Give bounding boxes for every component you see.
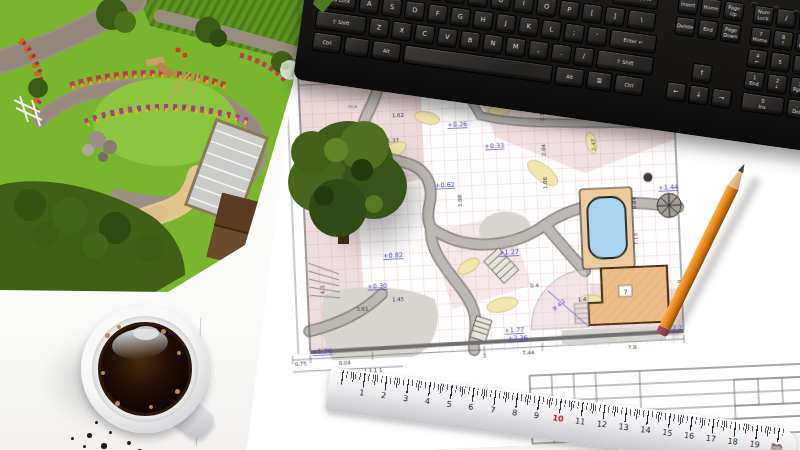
key-home: Home [700,0,722,19]
keyboard-led [773,6,779,12]
key-slash: / [573,46,595,68]
key-arrow-down: ↓ [687,84,709,106]
key-k: K [517,16,539,38]
key-v: V [436,27,458,49]
house-number: 7 [623,288,627,296]
ruler-number: 11 [569,416,592,428]
key-arrow-up: ↑ [691,63,713,85]
ruler-number: 15 [656,427,679,439]
key-end: End [697,19,719,41]
svg-text:+0.33: +0.33 [484,142,504,151]
svg-text:1.45: 1.45 [392,296,405,303]
key-a: A [358,0,380,15]
key-alt-left: Alt [371,40,402,63]
svg-text:4.3: 4.3 [319,285,325,295]
ruler-number: 19 [743,439,766,450]
key-num-5: 5 [769,51,791,73]
key-num-8: 8 ↑ [772,30,794,52]
key-t: T [444,0,466,5]
key-c: C [413,24,435,46]
key-num-7: 7 Home [749,26,771,48]
key-b: B [459,30,481,52]
key-period: . [550,43,572,65]
key-h: H [472,10,494,32]
ruler-number: 7 [481,404,504,416]
svg-text:9.84: 9.84 [631,196,638,209]
key-num-lock: Num Lock [752,5,774,27]
key-page-down: Page Down [719,22,741,44]
key-page-up: Page Up [723,0,745,22]
key-menu: ≣ [585,70,612,92]
ruler-number: 3 [394,393,417,405]
key-bracket-right: ] [604,6,626,28]
svg-text:2.04: 2.04 [540,143,547,156]
key-p: P [558,0,580,21]
svg-text:7.13: 7.13 [632,232,639,245]
ruler-number: 9 [525,410,548,422]
key-backslash: \ [626,9,656,32]
key-arrow-right: → [710,88,732,110]
ruler-number: 1 [350,387,373,399]
keyboard-led [793,10,799,16]
svg-text:0.4: 0.4 [530,282,540,288]
key-z: Z [368,17,390,39]
svg-text:1.4: 1.4 [578,296,588,302]
key-semicolon: ; [563,22,585,44]
ruler-number: 12 [590,418,613,430]
coffee-cup [57,293,237,450]
key-s: S [381,0,403,18]
svg-text:+0.30: +0.30 [367,282,387,291]
svg-text:+1.27: +1.27 [499,248,519,257]
svg-text:2.47: 2.47 [590,138,597,151]
ruler-number: 16 [678,430,701,442]
svg-text:7.44: 7.44 [522,349,535,356]
key-x: X [390,20,412,42]
key-bracket-left: [ [581,3,603,25]
key-num-9: 9 PgUp [795,33,800,55]
key-o: O [535,0,557,18]
key-l: L [540,19,562,41]
key-f: F [426,3,448,25]
ruler-number: 13 [612,421,635,433]
key-ctrl-left: Ctrl [311,31,342,54]
key-arrow-left: ← [665,81,687,103]
svg-text:+1.44: +1.44 [658,183,678,192]
key-m: M [504,36,526,58]
pool [579,187,634,269]
ruler-number: 5 [438,398,461,410]
svg-text:+1.26: +1.26 [312,347,332,356]
ruler-number: 8 [503,407,526,419]
svg-text:3.61: 3.61 [356,306,369,313]
key-enter: Enter ↵ [608,29,657,54]
svg-text:0.75: 0.75 [294,360,307,367]
svg-text:+2.36: +2.36 [508,334,528,343]
key-win [343,36,370,58]
key-ctrl-right: Ctrl [613,74,644,97]
key-num-2: 2 ↓ [766,73,788,95]
ruler-number: 6 [459,401,482,413]
key-num-decimal: . Del [786,98,800,120]
svg-text:8.04: 8.04 [339,359,352,366]
ruler-number: 4 [416,395,439,407]
ruler-number: 10 [547,413,570,425]
ruler-number: 14 [634,424,657,436]
key-y: Y [467,0,489,8]
key-g: G [449,6,471,28]
svg-text:3: 3 [483,353,487,359]
ruler-number: 2 [372,390,395,402]
svg-text:1.98: 1.98 [457,194,464,207]
key-num-1: 1 End [743,70,765,92]
key-num-0: 0 Ins [740,92,785,117]
svg-text:7.8: 7.8 [628,344,638,350]
coffee-reflection [133,326,159,340]
key-i: I [512,0,534,15]
area-label: пса [348,103,357,109]
key-u: U [490,0,512,11]
svg-text:1.06: 1.06 [542,176,549,189]
key-r: R [421,0,443,2]
key-n: N [482,33,504,55]
key-quote: ' [586,26,608,48]
key-num-3: 3 PgDn [789,76,800,98]
key-comma: , [527,40,549,62]
key-d: D [403,0,425,22]
key-alt-right: Alt [554,66,585,89]
key-num-6: 6 → [792,55,800,77]
svg-text:+0.26: +0.26 [447,120,467,129]
ruler-number: 17 [699,433,722,445]
key-delete: Delete [674,16,696,38]
keyboard-led [751,2,757,8]
scene: 7 R 4.2 2.73 1.62 [0,0,800,450]
key-insert: Insert [677,0,699,16]
ruler-slot [771,444,783,450]
ruler-number: 18 [721,436,744,448]
tree-3d [278,112,418,252]
key-num-4: 4 ← [746,48,768,70]
key-j: J [495,13,517,35]
